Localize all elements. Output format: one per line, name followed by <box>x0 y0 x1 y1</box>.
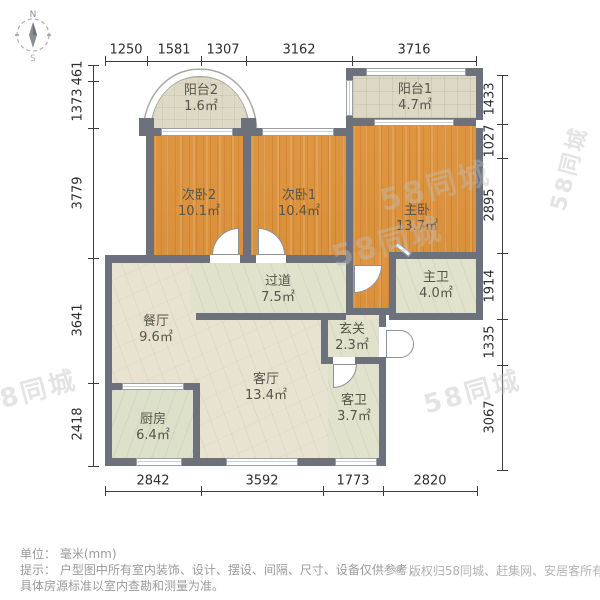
room-name: 主卧 <box>404 203 430 218</box>
room-area: 10.4㎡ <box>278 204 320 220</box>
room-name: 客卫 <box>341 393 367 408</box>
door-opening <box>333 357 355 364</box>
room-name: 过道 <box>265 274 291 289</box>
window <box>262 128 334 136</box>
dim-tick <box>201 486 202 496</box>
wall-segment <box>389 252 476 259</box>
unit-note: 单位： 毫米(mm) <box>20 545 117 562</box>
dim-right-0: 1433 <box>483 82 498 115</box>
wall-segment <box>146 128 154 263</box>
wall-segment <box>105 255 112 466</box>
dim-tick <box>88 65 99 66</box>
dim-bottom-2: 1773 <box>336 474 369 489</box>
dim-tick <box>88 258 99 259</box>
door-opening <box>256 255 286 263</box>
room-area: 4.0㎡ <box>419 286 453 302</box>
dim-left-1: 1373 <box>71 88 86 121</box>
wall-segment <box>105 255 154 263</box>
dim-tick <box>497 124 508 125</box>
dim-tick <box>246 56 247 66</box>
dim-right-5: 3067 <box>483 400 498 433</box>
dim-tick <box>497 470 508 471</box>
dim-bottom-3: 2820 <box>413 474 446 489</box>
room-area: 6.4㎡ <box>136 428 170 444</box>
dim-tick <box>497 75 508 76</box>
room-label-master: 主卧 13.7㎡ <box>396 203 438 236</box>
room-name: 次卧2 <box>182 188 216 203</box>
room-area: 10.1㎡ <box>178 204 220 220</box>
room-label-entry: 玄关 2.3㎡ <box>335 322 369 355</box>
dim-top-3: 3162 <box>282 43 315 58</box>
dim-top-4: 3716 <box>397 43 430 58</box>
dim-left-0: 461 <box>71 61 86 86</box>
dim-tick <box>497 253 508 254</box>
tip-note-line2: 具体房源标准以室内查勘和测量为准。 <box>20 577 224 594</box>
room-area: 4.7㎡ <box>398 98 432 114</box>
dim-left-3: 3641 <box>71 303 86 336</box>
room-label-bedroom2: 次卧2 10.1㎡ <box>178 188 220 221</box>
dim-tick <box>477 486 478 496</box>
dim-tick <box>88 81 99 82</box>
room-name: 主卫 <box>423 270 449 285</box>
watermark-58tongcheng: 58同城 <box>0 360 81 422</box>
room-label-dining: 餐厅 9.6㎡ <box>139 314 173 347</box>
dim-tick <box>497 158 508 159</box>
dim-tick <box>352 56 353 66</box>
room-label-masterbath: 主卫 4.0㎡ <box>419 270 453 303</box>
door-arc <box>386 330 414 358</box>
wall-segment <box>193 383 200 458</box>
room-label-balcony2: 阳台2 1.6㎡ <box>184 83 218 116</box>
room-label-balcony1: 阳台1 4.7㎡ <box>398 82 432 115</box>
room-name: 厨房 <box>140 412 166 427</box>
dim-bottom-1: 3592 <box>245 474 278 489</box>
dim-tick <box>88 383 99 384</box>
wall-segment <box>389 313 476 320</box>
room-name: 餐厅 <box>143 314 169 329</box>
wall-segment <box>196 313 346 320</box>
room-area: 13.7㎡ <box>396 219 438 235</box>
room-area: 3.7㎡ <box>337 409 371 425</box>
room-label-living: 客厅 13.4㎡ <box>245 372 287 405</box>
dimension-line-bottom <box>105 491 478 492</box>
copyright-note: © 版权归58同城、赶集网、安居客所有 <box>393 562 600 579</box>
room-area: 1.6㎡ <box>184 99 218 115</box>
room-name: 阳台1 <box>398 82 432 97</box>
dim-tick <box>383 486 384 496</box>
dim-top-1: 1581 <box>157 43 190 58</box>
dim-tick <box>88 466 99 467</box>
room-label-guestbath: 客卫 3.7㎡ <box>337 393 371 426</box>
dim-left-4: 2418 <box>71 407 86 440</box>
window <box>136 458 182 466</box>
room-label-bedroom1: 次卧1 10.4㎡ <box>278 188 320 221</box>
room-label-corridor: 过道 7.5㎡ <box>261 274 295 307</box>
window <box>366 68 466 76</box>
window <box>374 119 454 126</box>
door-opening <box>379 327 386 357</box>
room-name: 次卧1 <box>282 188 316 203</box>
window <box>335 458 377 466</box>
dim-tick <box>497 319 508 320</box>
compass-icon: N S <box>8 6 58 64</box>
wall-segment <box>146 255 353 263</box>
dimension-line-right <box>502 75 503 470</box>
room-name: 玄关 <box>339 322 365 337</box>
dimension-line-top <box>105 61 477 62</box>
watermark-58tongcheng: 58同城 <box>541 122 594 214</box>
dim-right-1: 1027 <box>483 124 498 157</box>
dim-bottom-0: 2842 <box>136 474 169 489</box>
dim-tick <box>105 486 106 496</box>
dim-tick <box>201 56 202 66</box>
dim-tick <box>497 365 508 366</box>
window <box>122 383 184 390</box>
window <box>226 458 298 466</box>
dim-tick <box>476 56 477 66</box>
window <box>346 80 353 116</box>
room-area: 2.3㎡ <box>335 338 369 354</box>
dim-tick <box>88 128 99 129</box>
wall-segment <box>346 126 353 315</box>
dim-tick <box>147 56 148 66</box>
watermark-58tongcheng: 58同城 <box>419 360 525 422</box>
dim-right-4: 1335 <box>483 325 498 358</box>
dim-right-2: 2895 <box>483 188 498 221</box>
room-area: 7.5㎡ <box>261 290 295 306</box>
dim-top-2: 1307 <box>206 43 239 58</box>
room-label-kitchen: 厨房 6.4㎡ <box>136 412 170 445</box>
wall-segment <box>346 308 396 315</box>
wall-segment <box>243 136 251 263</box>
dim-top-0: 1250 <box>109 43 142 58</box>
dim-tick <box>323 486 324 496</box>
compass-north-label: N <box>30 10 37 20</box>
compass-south-label: S <box>30 54 36 64</box>
room-name: 客厅 <box>253 372 279 387</box>
window <box>161 128 233 136</box>
room-name: 阳台2 <box>184 83 218 98</box>
tip-note-line1: 提示： 户型图中所有室内装饰、设计、摆设、间隔、尺寸、设备仅供参考， <box>20 561 420 578</box>
door-opening <box>210 255 240 263</box>
dimension-line-left <box>93 65 94 466</box>
room-area: 13.4㎡ <box>245 388 287 404</box>
dim-tick <box>105 56 106 66</box>
dim-right-3: 1914 <box>483 269 498 302</box>
dim-left-2: 3779 <box>71 176 86 209</box>
floorplan-canvas: N S <box>0 0 600 600</box>
room-area: 9.6㎡ <box>139 330 173 346</box>
